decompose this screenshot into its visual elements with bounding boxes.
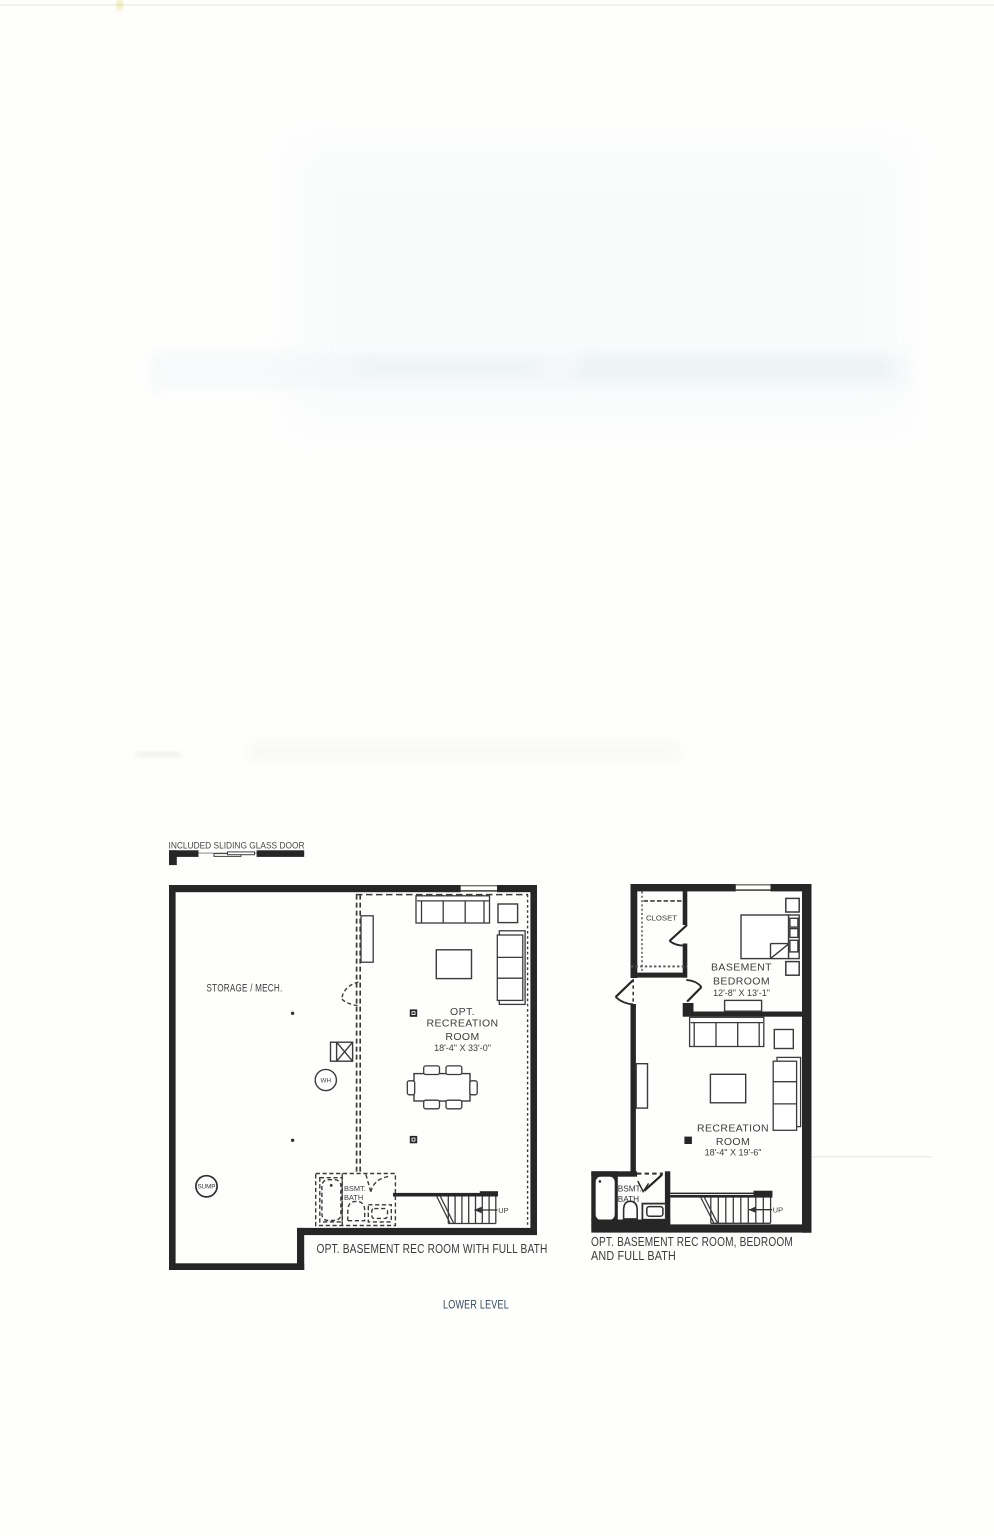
svg-text:BSMT.: BSMT. bbox=[344, 1184, 366, 1193]
svg-text:RECREATION: RECREATION bbox=[426, 1018, 498, 1030]
svg-text:ROOM: ROOM bbox=[445, 1031, 479, 1043]
svg-text:OPT. BASEMENT REC ROOM WITH FU: OPT. BASEMENT REC ROOM WITH FULL BATH bbox=[317, 1241, 548, 1256]
svg-text:OPT. BASEMENT REC ROOM, BEDROO: OPT. BASEMENT REC ROOM, BEDROOM bbox=[591, 1234, 793, 1249]
svg-text:RECREATION: RECREATION bbox=[697, 1123, 769, 1135]
svg-text:ROOM: ROOM bbox=[716, 1136, 750, 1148]
svg-text:BSMT.: BSMT. bbox=[618, 1184, 642, 1193]
svg-text:BATH: BATH bbox=[618, 1195, 639, 1204]
svg-text:BATH: BATH bbox=[344, 1193, 363, 1202]
svg-text:LOWER LEVEL: LOWER LEVEL bbox=[443, 1298, 509, 1312]
svg-text:18'-4" X 19'-6": 18'-4" X 19'-6" bbox=[705, 1147, 762, 1157]
svg-text:12'-8" X 13'-1": 12'-8" X 13'-1" bbox=[713, 988, 770, 998]
svg-text:UP: UP bbox=[498, 1206, 508, 1215]
svg-text:CLOSET: CLOSET bbox=[646, 913, 677, 922]
svg-text:18'-4" X 33'-0": 18'-4" X 33'-0" bbox=[434, 1043, 491, 1053]
svg-text:INCLUDED SLIDING GLASS DOOR: INCLUDED SLIDING GLASS DOOR bbox=[169, 841, 305, 851]
svg-text:BASEMENT: BASEMENT bbox=[711, 962, 772, 974]
svg-text:BEDROOM: BEDROOM bbox=[713, 975, 770, 987]
svg-text:SUMP: SUMP bbox=[198, 1184, 216, 1191]
svg-text:OPT.: OPT. bbox=[450, 1006, 475, 1018]
svg-text:STORAGE / MECH.: STORAGE / MECH. bbox=[207, 983, 283, 995]
svg-text:UP: UP bbox=[773, 1206, 783, 1215]
svg-text:AND FULL BATH: AND FULL BATH bbox=[591, 1248, 676, 1263]
svg-text:WH: WH bbox=[321, 1077, 332, 1084]
